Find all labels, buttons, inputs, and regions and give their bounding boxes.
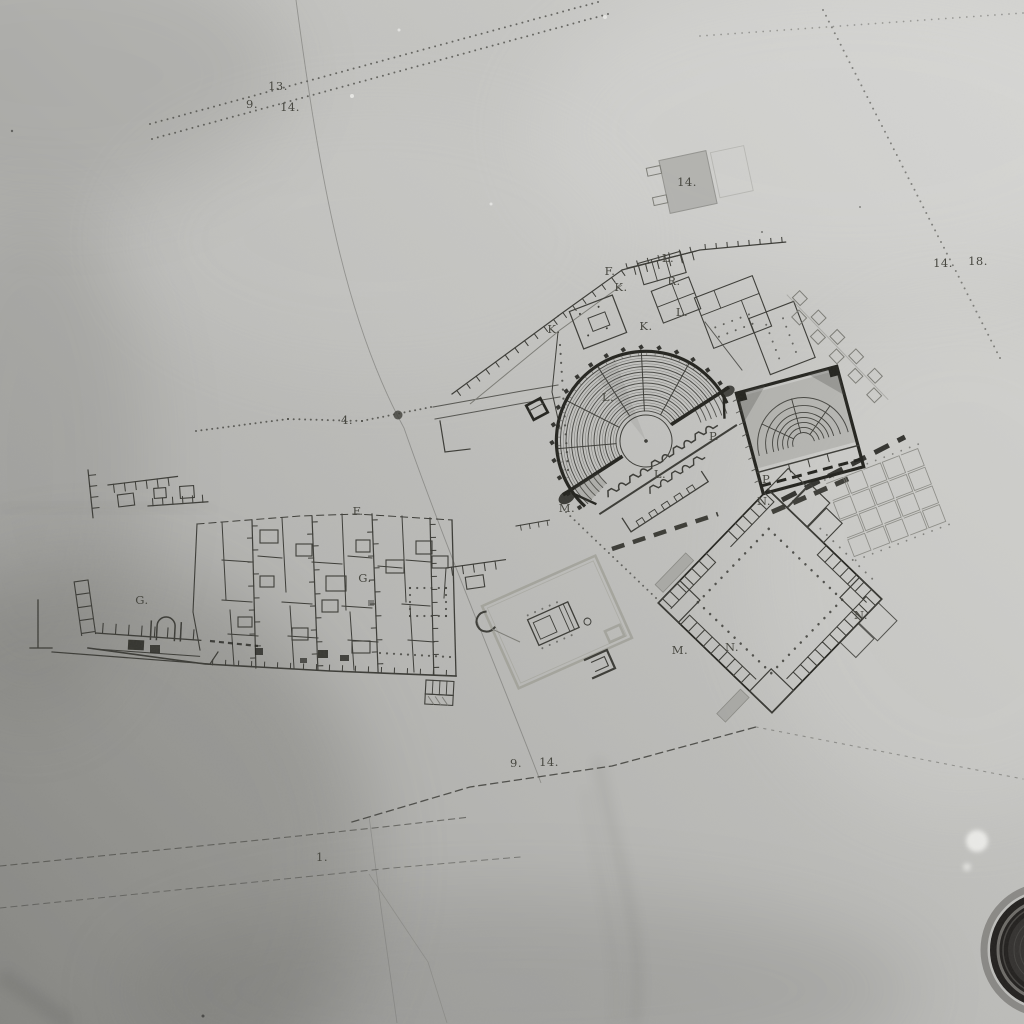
map-geometry — [908, 177, 910, 179]
map-label-kC: K. — [547, 322, 560, 336]
speck — [761, 231, 763, 233]
map-label-n18: 18. — [968, 254, 988, 268]
map-geometry — [1001, 14, 1003, 16]
map-geometry — [161, 120, 163, 122]
map-geometry — [790, 29, 792, 31]
map-geometry — [149, 123, 151, 125]
map-label-mB: M. — [672, 643, 688, 657]
map-geometry — [449, 656, 451, 658]
map-geometry — [497, 43, 499, 45]
map-geometry — [295, 83, 297, 85]
map-geometry — [313, 94, 315, 96]
map-geometry — [943, 247, 945, 249]
map-geometry — [642, 585, 644, 587]
map-geometry — [445, 57, 447, 59]
map-geometry — [370, 63, 372, 65]
map-geometry — [846, 55, 848, 57]
map-geometry — [220, 119, 222, 121]
map-geometry — [368, 600, 374, 606]
map-geometry — [872, 108, 874, 110]
map-geometry — [191, 127, 193, 129]
map-geometry — [353, 68, 355, 70]
map-geometry — [215, 121, 217, 123]
map-geometry — [970, 299, 972, 301]
map-geometry — [487, 31, 489, 33]
map-geometry — [922, 206, 924, 208]
map-geometry — [261, 108, 263, 110]
map-geometry — [435, 655, 437, 657]
map-geometry — [393, 653, 395, 655]
map-geometry — [318, 650, 328, 658]
speck — [398, 29, 401, 32]
map-geometry — [599, 544, 601, 546]
speck — [11, 130, 13, 132]
map-geometry — [186, 129, 188, 131]
map-geometry — [945, 18, 947, 20]
map-geometry — [925, 212, 927, 214]
map-geometry — [699, 35, 701, 37]
map-geometry — [172, 117, 174, 119]
map-geometry — [428, 655, 430, 657]
map-geometry — [405, 53, 407, 55]
map-geometry — [604, 548, 606, 550]
map-geometry — [527, 20, 529, 22]
map-geometry — [463, 53, 465, 55]
map-geometry — [889, 22, 891, 24]
map-geometry — [958, 276, 960, 278]
map-geometry — [498, 28, 500, 30]
map-geometry — [336, 87, 338, 89]
map-geometry — [293, 418, 295, 420]
map-geometry — [911, 183, 913, 185]
map-geometry — [434, 61, 436, 63]
map-geometry — [150, 645, 160, 653]
map-geometry — [569, 515, 571, 517]
map-geometry — [233, 425, 235, 427]
map-geometry — [232, 116, 234, 118]
map-geometry — [999, 357, 1001, 359]
map-geometry — [776, 30, 778, 32]
map-geometry — [228, 426, 230, 428]
map-geometry — [340, 655, 349, 661]
map-geometry — [231, 101, 233, 103]
map-geometry — [190, 112, 192, 114]
map-geometry — [868, 23, 870, 25]
map-geometry — [825, 15, 827, 17]
map-label-rA: R. — [667, 274, 680, 288]
map-geometry — [938, 18, 940, 20]
map-label-n14box: 14. — [677, 175, 697, 189]
map-geometry — [804, 28, 806, 30]
map-geometry — [206, 429, 208, 431]
map-geometry — [905, 171, 907, 173]
map-label-lA: L. — [662, 251, 674, 265]
map-geometry — [896, 154, 898, 156]
map-geometry — [382, 75, 384, 77]
map-geometry — [574, 7, 576, 9]
map-geometry — [422, 64, 424, 66]
map-geometry — [445, 615, 447, 617]
speck — [603, 15, 607, 19]
map-geometry — [446, 42, 448, 44]
map-geometry — [361, 420, 363, 422]
bright-spot — [963, 863, 971, 871]
map-geometry — [837, 38, 839, 40]
map-label-lC: L. — [602, 390, 614, 404]
map-geometry — [209, 122, 211, 124]
map-geometry — [407, 654, 409, 656]
map-geometry — [399, 55, 401, 57]
map-geometry — [255, 648, 263, 655]
map-geometry — [393, 57, 395, 59]
map-geometry — [423, 615, 425, 617]
map-geometry — [993, 345, 995, 347]
map-geometry — [651, 593, 653, 595]
map-geometry — [203, 124, 205, 126]
map-geometry — [916, 195, 918, 197]
map-geometry — [318, 92, 320, 94]
map-geometry — [629, 572, 631, 574]
map-geometry — [425, 407, 427, 409]
map-geometry — [226, 117, 228, 119]
map-geometry — [515, 38, 517, 40]
map-geometry — [952, 17, 954, 19]
map-geometry — [940, 241, 942, 243]
map-geometry — [316, 419, 318, 421]
map-geometry — [621, 564, 623, 566]
map-geometry — [219, 104, 221, 106]
map-geometry — [481, 33, 483, 35]
map-geometry — [994, 14, 996, 16]
map-geometry — [919, 200, 921, 202]
map-geometry — [555, 27, 557, 29]
map-geometry — [399, 70, 401, 72]
map-geometry — [265, 91, 267, 93]
map-geometry — [298, 418, 300, 420]
map-geometry — [353, 83, 355, 85]
map-geometry — [355, 420, 357, 422]
map-geometry — [931, 19, 933, 21]
map-geometry — [474, 49, 476, 51]
map-geometry — [330, 89, 332, 91]
map-geometry — [510, 25, 512, 27]
map-geometry — [445, 608, 447, 610]
map-geometry — [282, 419, 284, 421]
map-geometry — [409, 608, 411, 610]
map-geometry — [797, 28, 799, 30]
map-geometry — [382, 416, 384, 418]
map-geometry — [222, 427, 224, 429]
map-geometry — [200, 429, 202, 431]
map-geometry — [917, 20, 919, 22]
map-geometry — [463, 37, 465, 39]
map-geometry — [961, 282, 963, 284]
map-geometry — [847, 25, 849, 27]
map-geometry — [549, 29, 551, 31]
map-geometry — [128, 640, 145, 651]
map-geometry — [819, 27, 821, 29]
map-label-n9b: 9. — [510, 756, 522, 770]
map-geometry — [843, 50, 845, 52]
map-geometry — [180, 130, 182, 132]
map-geometry — [990, 340, 992, 342]
map-geometry — [562, 398, 564, 400]
map-geometry — [255, 422, 257, 424]
map-geometry — [783, 29, 785, 31]
map-geometry — [307, 95, 309, 97]
map-geometry — [276, 419, 278, 421]
map-geometry — [376, 76, 378, 78]
map-label-gA: G. — [358, 571, 371, 585]
map-geometry — [741, 32, 743, 34]
map-geometry — [376, 61, 378, 63]
crease — [0, 505, 210, 511]
bright-spot — [966, 830, 988, 852]
map-geometry — [167, 118, 169, 120]
map-geometry — [492, 45, 494, 47]
map-geometry — [416, 615, 418, 617]
map-geometry — [834, 32, 836, 34]
map-geometry — [300, 658, 307, 663]
map-geometry — [238, 114, 240, 116]
map-geometry — [595, 540, 597, 542]
map-geometry — [409, 410, 411, 412]
map-geometry — [560, 353, 562, 355]
map-geometry — [574, 519, 576, 521]
speck — [350, 94, 354, 98]
map-geometry — [271, 420, 273, 422]
map-geometry — [266, 106, 268, 108]
map-label-fA: F. — [605, 264, 616, 278]
map-geometry — [265, 421, 267, 423]
map-label-n14a: 14. — [280, 100, 300, 114]
map-geometry — [457, 39, 459, 41]
map-geometry — [975, 311, 977, 313]
map-geometry — [428, 62, 430, 64]
map-geometry — [890, 142, 892, 144]
map-geometry — [409, 587, 411, 589]
map-geometry — [287, 418, 289, 420]
map-geometry — [174, 132, 176, 134]
map-label-kB: K. — [639, 319, 652, 333]
map-geometry — [556, 12, 558, 14]
map-geometry — [238, 424, 240, 426]
map-geometry — [469, 36, 471, 38]
map-geometry — [539, 17, 541, 19]
map-geometry — [428, 47, 430, 49]
map-geometry — [372, 418, 374, 420]
map-geometry — [504, 26, 506, 28]
map-geometry — [414, 654, 416, 656]
map-geometry — [1015, 13, 1017, 15]
map-geometry — [826, 26, 828, 28]
map-geometry — [755, 31, 757, 33]
map-geometry — [364, 64, 366, 66]
map-geometry — [634, 577, 636, 579]
map-geometry — [324, 76, 326, 78]
map-geometry — [520, 37, 522, 39]
map-geometry — [655, 597, 657, 599]
map-geometry — [987, 15, 989, 17]
map-geometry — [195, 430, 197, 432]
map-geometry — [973, 305, 975, 307]
map-geometry — [379, 652, 381, 654]
map-geometry — [486, 46, 488, 48]
map-geometry — [213, 106, 215, 108]
map-label-n1: 1. — [316, 850, 328, 864]
map-geometry — [388, 73, 390, 75]
map-geometry — [987, 334, 989, 336]
map-geometry — [596, 16, 598, 18]
map-geometry — [359, 66, 361, 68]
map-geometry — [411, 67, 413, 69]
map-geometry — [409, 615, 411, 617]
map-geometry — [440, 44, 442, 46]
map-geometry — [289, 85, 291, 87]
map-label-lB: L. — [676, 305, 688, 319]
map-geometry — [260, 422, 262, 424]
map-geometry — [638, 581, 640, 583]
map-geometry — [561, 380, 563, 382]
map-geometry — [400, 653, 402, 655]
map-geometry — [857, 79, 859, 81]
map-geometry — [882, 22, 884, 24]
speck — [490, 203, 493, 206]
map-geometry — [421, 654, 423, 656]
map-geometry — [545, 15, 547, 17]
map-geometry — [887, 137, 889, 139]
map-geometry — [561, 371, 563, 373]
map-label-nA: N. — [757, 494, 771, 508]
map-geometry — [184, 114, 186, 116]
map-geometry — [840, 44, 842, 46]
map-geometry — [893, 148, 895, 150]
map-label-gB: G. — [135, 593, 148, 607]
map-geometry — [831, 26, 833, 28]
map-geometry — [616, 560, 618, 562]
map-geometry — [469, 51, 471, 53]
map-geometry — [582, 527, 584, 529]
map-geometry — [342, 86, 344, 88]
map-geometry — [625, 568, 627, 570]
map-geometry — [452, 41, 454, 43]
map-geometry — [762, 31, 764, 33]
map-geometry — [559, 344, 561, 346]
map-geometry — [828, 21, 830, 23]
map-geometry — [769, 30, 771, 32]
map-geometry — [878, 119, 880, 121]
map-geometry — [417, 65, 419, 67]
map-geometry — [411, 52, 413, 54]
map-geometry — [980, 15, 982, 17]
map-geometry — [405, 68, 407, 70]
map-geometry — [934, 229, 936, 231]
map-geometry — [431, 615, 433, 617]
map-geometry — [201, 109, 203, 111]
map-geometry — [863, 90, 865, 92]
map-geometry — [526, 35, 528, 37]
map-geometry — [811, 27, 813, 29]
map-geometry — [236, 99, 238, 101]
map-geometry — [438, 615, 440, 617]
map-geometry — [409, 594, 411, 596]
map-geometry — [884, 131, 886, 133]
map-geometry — [217, 427, 219, 429]
map-geometry — [312, 79, 314, 81]
map-geometry — [902, 166, 904, 168]
map-geometry — [713, 34, 715, 36]
map-geometry — [430, 406, 432, 408]
map-label-n9a: 9. — [246, 97, 258, 111]
map-geometry — [899, 160, 901, 162]
map-geometry — [365, 80, 367, 82]
map-geometry — [562, 11, 564, 13]
map-geometry — [318, 77, 320, 79]
map-geometry — [572, 23, 574, 25]
map-label-n14c: 14. — [539, 755, 559, 769]
map-geometry — [249, 423, 251, 425]
map-geometry — [720, 34, 722, 36]
map-geometry — [359, 81, 361, 83]
map-geometry — [509, 40, 511, 42]
map-geometry — [244, 424, 246, 426]
map-geometry — [260, 93, 262, 95]
map-geometry — [855, 73, 857, 75]
map-geometry — [734, 33, 736, 35]
map-geometry — [211, 428, 213, 430]
map-geometry — [163, 135, 165, 137]
map-geometry — [608, 552, 610, 554]
map-geometry — [434, 45, 436, 47]
map-geometry — [438, 587, 440, 589]
map-geometry — [335, 72, 337, 74]
map-geometry — [419, 408, 421, 410]
map-geometry — [601, 15, 603, 17]
map-geometry — [748, 32, 750, 34]
map-label-n4: 4. — [341, 413, 353, 427]
speck — [202, 1015, 205, 1018]
map-geometry — [928, 218, 930, 220]
map-geometry — [580, 6, 582, 8]
map-geometry — [197, 125, 199, 127]
map-label-lD: L. — [654, 467, 666, 481]
map-geometry — [903, 21, 905, 23]
map-geometry — [914, 189, 916, 191]
map-geometry — [578, 523, 580, 525]
map-geometry — [451, 56, 453, 58]
map-geometry — [440, 59, 442, 61]
map-geometry — [937, 235, 939, 237]
map-geometry — [607, 13, 609, 15]
map-geometry — [151, 138, 153, 140]
map-geometry — [492, 30, 494, 32]
map-geometry — [207, 107, 209, 109]
map-geometry — [516, 23, 518, 25]
map-geometry — [386, 652, 388, 654]
map-geometry — [431, 587, 433, 589]
map-geometry — [423, 587, 425, 589]
map-geometry — [321, 419, 323, 421]
map-geometry — [896, 21, 898, 23]
map-geometry — [503, 42, 505, 44]
map-geometry — [984, 328, 986, 330]
speck — [859, 206, 861, 208]
map-geometry — [388, 58, 390, 60]
map-geometry — [1008, 13, 1010, 15]
map-geometry — [959, 17, 961, 19]
map-geometry — [822, 9, 824, 11]
map-geometry — [414, 409, 416, 411]
